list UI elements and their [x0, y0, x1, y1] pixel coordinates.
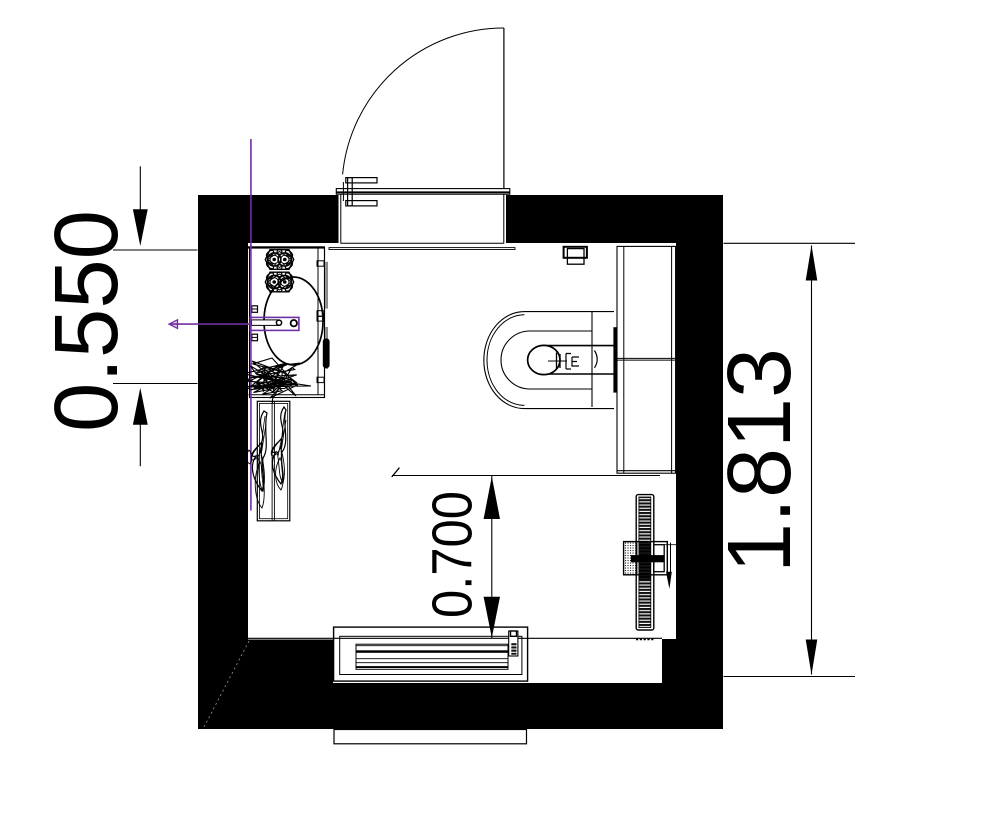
svg-text:0.700: 0.700 [421, 491, 485, 618]
svg-text:0.550: 0.550 [37, 210, 137, 432]
svg-text:1.813: 1.813 [710, 348, 810, 573]
